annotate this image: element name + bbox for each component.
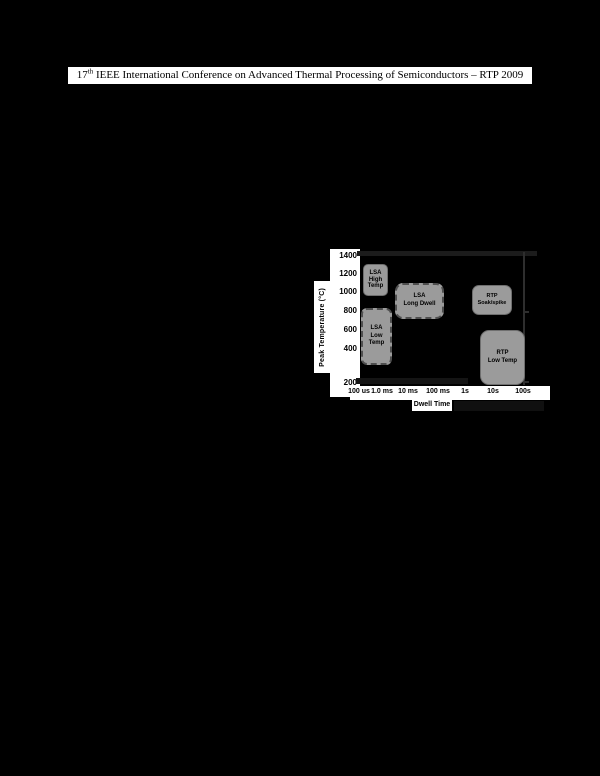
region-lsa-low-temp: LSA Low Temp: [361, 308, 392, 365]
artifact-ghost-caption: [454, 401, 544, 411]
y-tick-800: 800: [344, 306, 357, 316]
y-tick-1200: 1200: [339, 269, 357, 279]
x-tick-100ms: 100 ms: [424, 388, 452, 395]
x-tick-10s: 10s: [479, 388, 507, 395]
y-tick-1000: 1000: [339, 287, 357, 297]
region-label-line: Low Temp: [488, 358, 517, 366]
region-label-line: RTP: [487, 293, 498, 300]
region-label-line: LSA: [414, 293, 426, 301]
plot-top-frame: [357, 251, 537, 256]
y-tick-1400: 1400: [339, 251, 357, 261]
x-tick-1ms: 1.0 ms: [368, 388, 396, 395]
process-window-figure: Peak Temperature (°C) 1400 1200 1000 800…: [0, 0, 600, 776]
right-axis-tick: [525, 311, 529, 313]
region-label-line: Temp: [368, 283, 384, 290]
region-rtp-low-temp: RTP Low Temp: [480, 330, 525, 385]
y-tick-600: 600: [344, 325, 357, 335]
x-tick-10ms: 10 ms: [394, 388, 422, 395]
y-axis-tick-strip: 1400 1200 1000 800 600 400 200: [330, 249, 360, 397]
x-tick-1s: 1s: [451, 388, 479, 395]
region-label-line: LSA: [371, 325, 383, 333]
right-axis-tick: [525, 381, 529, 383]
region-label-line: Soak/spike: [478, 300, 507, 307]
region-label-line: High: [369, 277, 382, 284]
paper-page: 17th IEEE International Conference on Ad…: [0, 0, 600, 776]
region-lsa-long-dwell: LSA Long Dwell: [395, 283, 444, 319]
region-label-line: Long Dwell: [404, 301, 436, 309]
y-axis-title-strip: Peak Temperature (°C): [314, 281, 330, 373]
y-axis-title: Peak Temperature (°C): [319, 288, 326, 367]
region-lsa-high-temp: LSA High Temp: [363, 264, 388, 296]
x-axis-tick-strip: 100 us 1.0 ms 10 ms 100 ms 1s 10s 100s: [350, 386, 550, 400]
region-label-line: RTP: [497, 350, 509, 358]
region-label-line: Temp: [369, 340, 385, 348]
x-axis-title: Dwell Time: [412, 399, 452, 411]
y-tick-400: 400: [344, 344, 357, 354]
x-tick-100s: 100s: [509, 388, 537, 395]
region-rtp-soak-spike: RTP Soak/spike: [472, 285, 512, 315]
artifact-ghost-ticks: [356, 378, 468, 384]
region-label-line: LSA: [370, 270, 382, 277]
region-label-line: Low: [371, 333, 383, 341]
